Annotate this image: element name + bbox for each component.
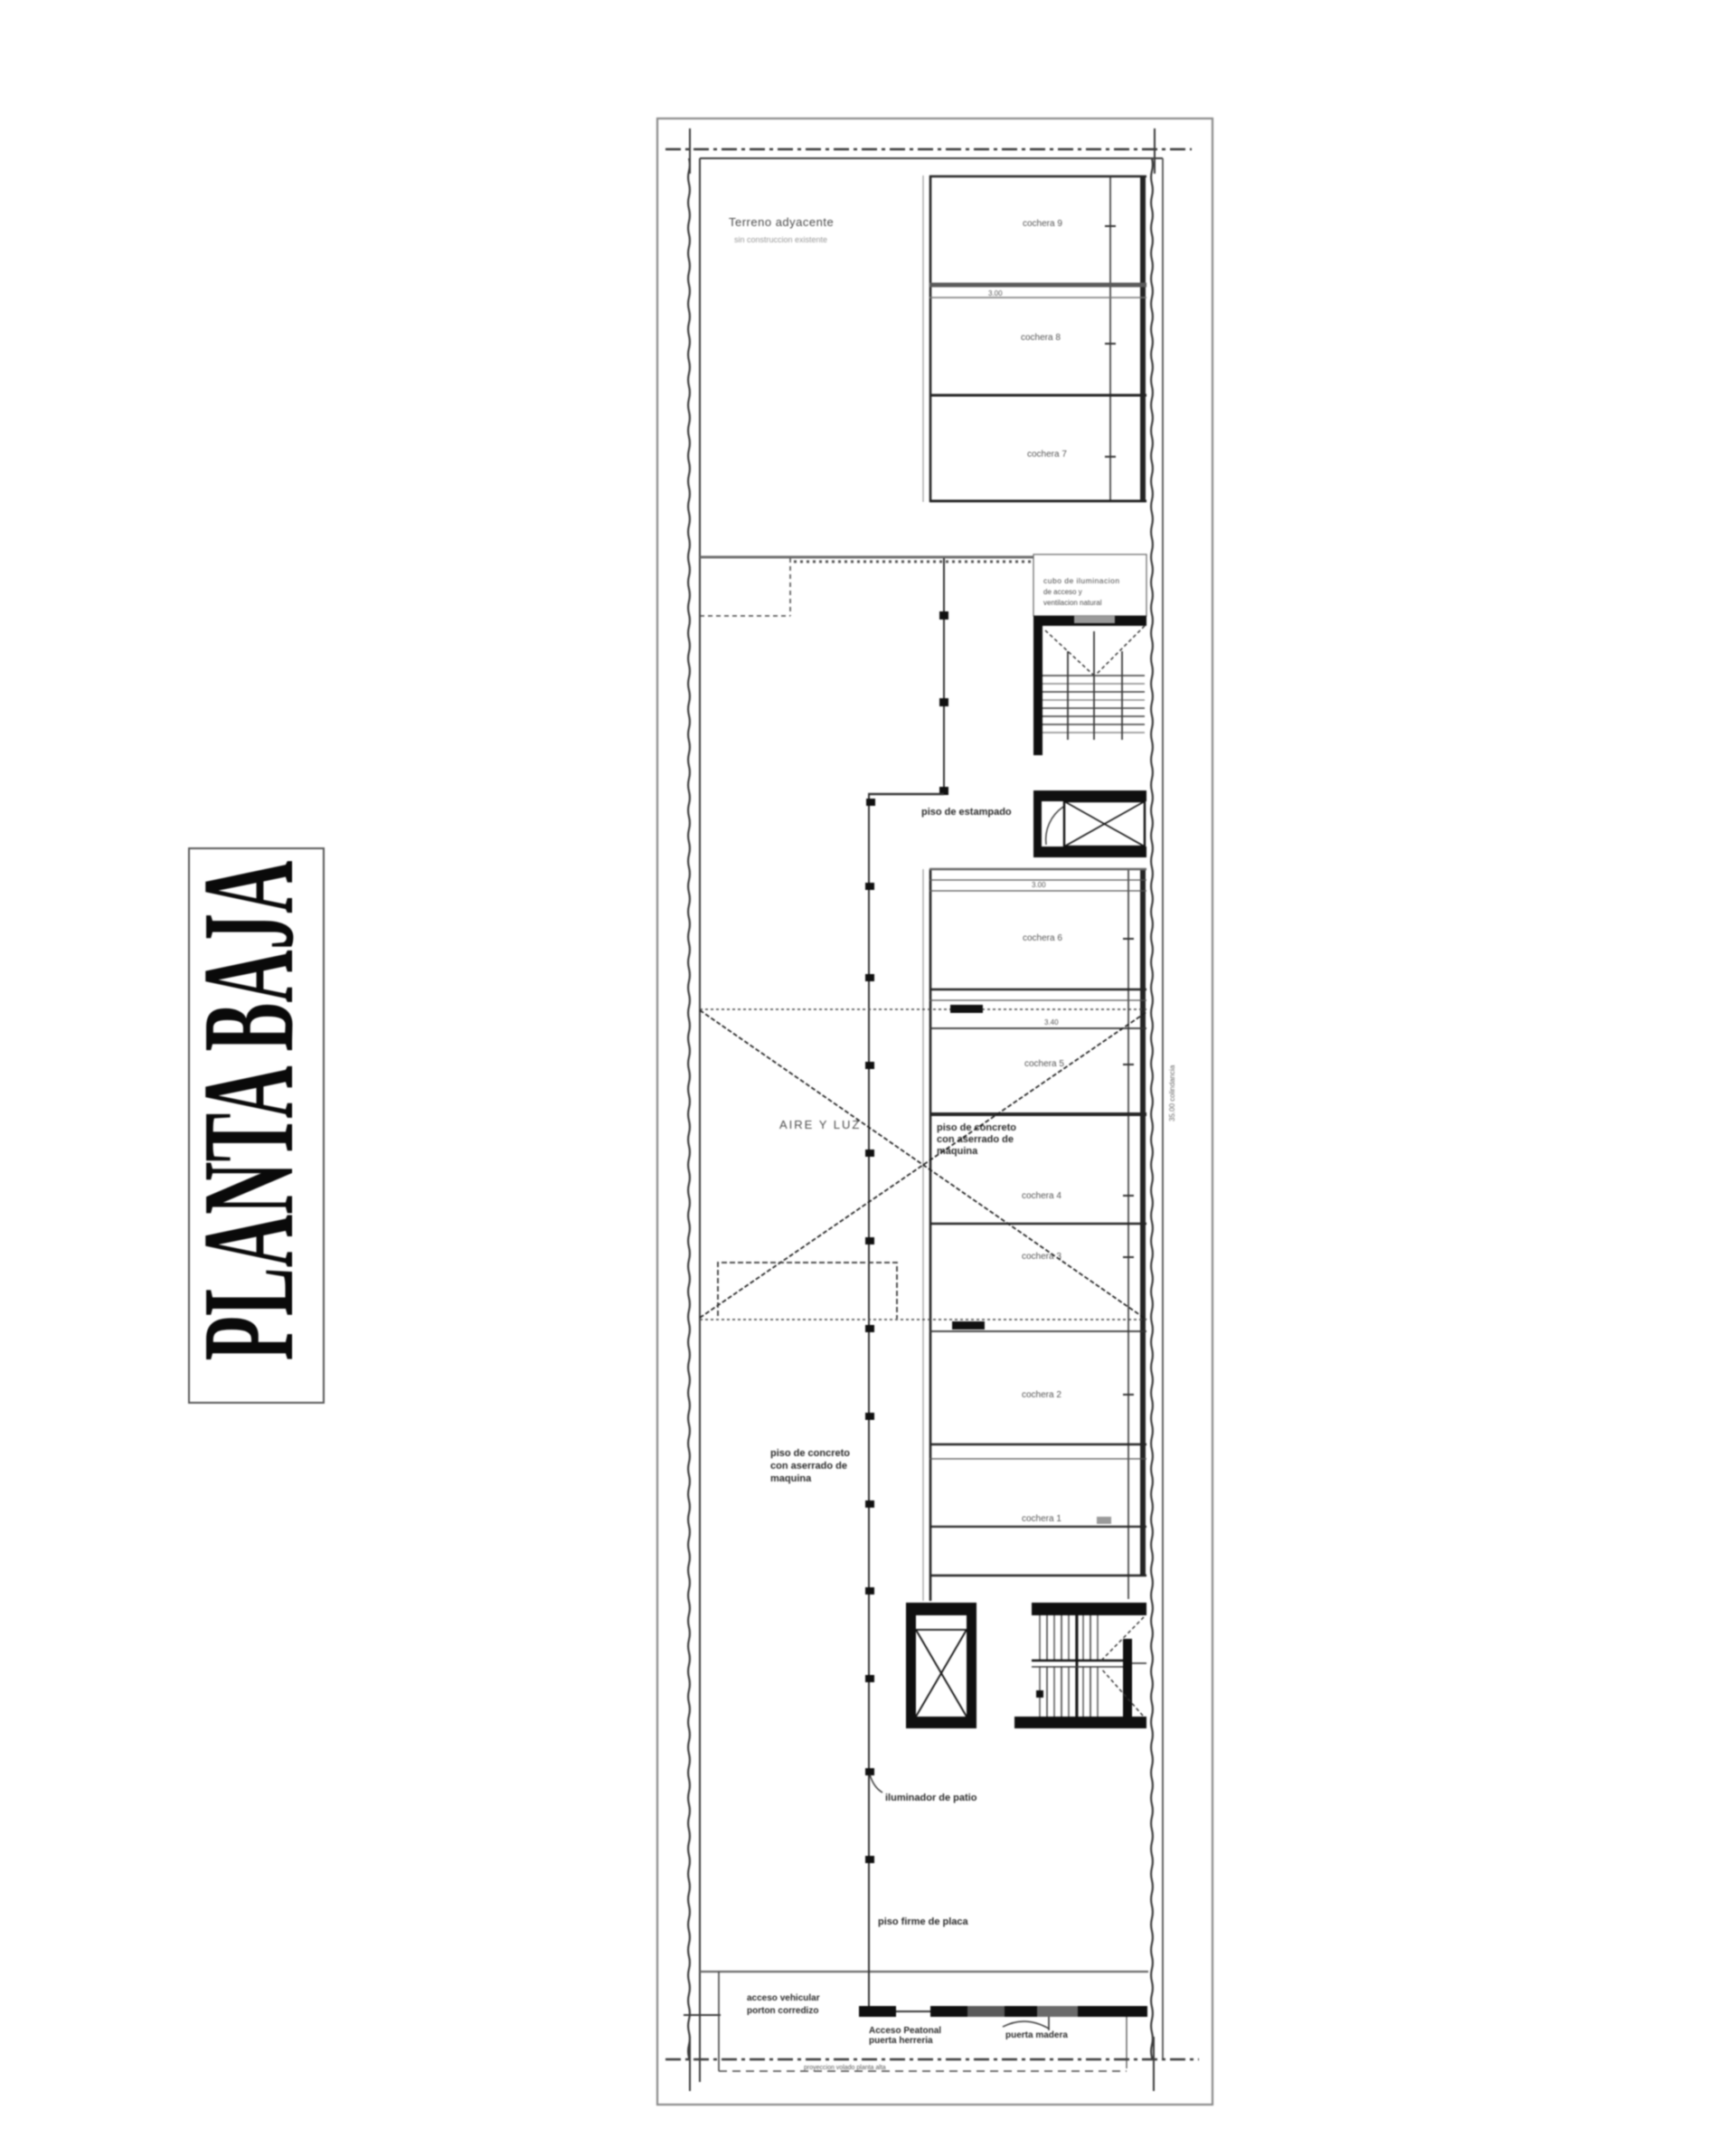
- svg-text:3.00: 3.00: [1032, 881, 1046, 889]
- svg-text:de acceso y: de acceso y: [1043, 588, 1082, 596]
- svg-text:cochera 9: cochera 9: [1023, 219, 1062, 229]
- svg-text:Terreno adyacente: Terreno adyacente: [729, 215, 834, 229]
- svg-text:piso de estampado: piso de estampado: [921, 807, 1012, 818]
- svg-text:AIRE Y LUZ: AIRE Y LUZ: [779, 1118, 861, 1131]
- svg-text:cochera 1: cochera 1: [1022, 1514, 1061, 1524]
- svg-text:con aserrado de: con aserrado de: [937, 1134, 1014, 1145]
- svg-text:cochera 4: cochera 4: [1022, 1191, 1061, 1201]
- svg-text:puerta herreria: puerta herreria: [869, 2036, 933, 2046]
- svg-text:3.00: 3.00: [988, 289, 1003, 298]
- svg-text:cubo de iluminacion: cubo de iluminacion: [1043, 576, 1120, 585]
- svg-text:cochera 3: cochera 3: [1022, 1252, 1061, 1262]
- svg-text:iluminador de patio: iluminador de patio: [885, 1793, 977, 1803]
- svg-text:piso firme de placa: piso firme de placa: [878, 1916, 969, 1927]
- svg-text:acceso vehicular: acceso vehicular: [747, 1993, 820, 2003]
- svg-text:cochera 6: cochera 6: [1023, 933, 1062, 943]
- svg-text:piso de concreto: piso de concreto: [770, 1448, 850, 1459]
- svg-text:cochera 7: cochera 7: [1027, 449, 1067, 459]
- svg-text:proyeccion volado planta alta: proyeccion volado planta alta: [804, 2065, 886, 2071]
- svg-text:porton corredizo: porton corredizo: [747, 2006, 818, 2016]
- svg-text:cochera 5: cochera 5: [1024, 1059, 1064, 1069]
- svg-text:con aserrado de: con aserrado de: [770, 1461, 847, 1471]
- svg-text:3.40: 3.40: [1044, 1018, 1059, 1027]
- svg-text:35.00 colindancia: 35.00 colindancia: [1168, 1065, 1176, 1121]
- svg-text:Acceso Peatonal: Acceso Peatonal: [869, 2026, 941, 2036]
- svg-text:puerta madera: puerta madera: [1005, 2030, 1068, 2040]
- svg-text:maquina: maquina: [770, 1473, 812, 1484]
- svg-text:cochera 2: cochera 2: [1022, 1390, 1061, 1400]
- svg-text:PLANTA BAJA: PLANTA BAJA: [176, 861, 321, 1361]
- svg-text:sin construccion existente: sin construccion existente: [734, 235, 827, 244]
- svg-text:cochera 8: cochera 8: [1021, 333, 1061, 343]
- svg-text:ventilacion natural: ventilacion natural: [1043, 599, 1102, 607]
